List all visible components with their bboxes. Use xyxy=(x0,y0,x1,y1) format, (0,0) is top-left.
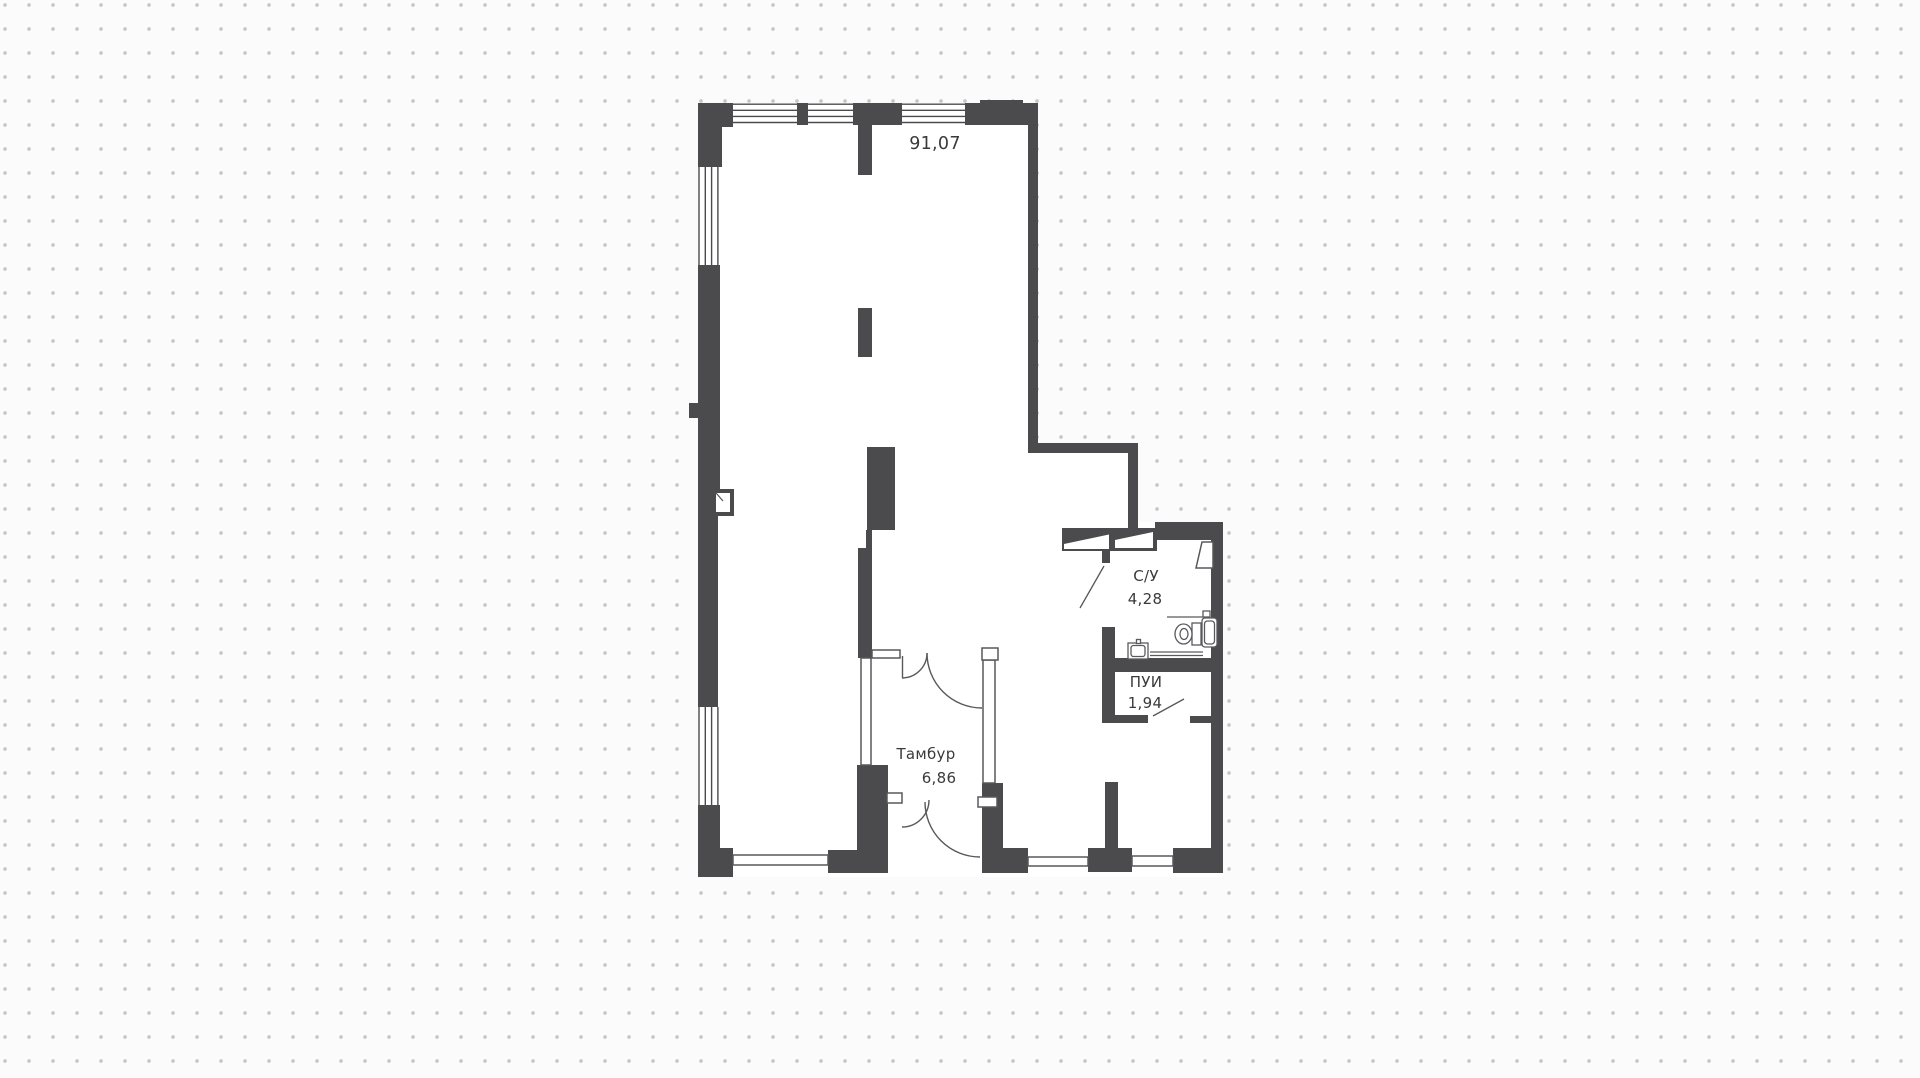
radiator-niche-icon xyxy=(716,493,730,512)
sink-tap xyxy=(1137,640,1141,644)
main-room-area-label: 91,07 xyxy=(909,134,961,154)
shelf-box xyxy=(1203,611,1210,617)
bathroom-area-label: 4,28 xyxy=(1128,590,1163,608)
floor-plan: 91,07 С/У 4,28 ПУИ 1,94 Тамбур 6,86 xyxy=(0,0,1920,1078)
cleaning-room-area-label: 1,94 xyxy=(1128,694,1163,712)
vestibule-name-label: Тамбур xyxy=(895,745,955,763)
toilet-tank xyxy=(1192,623,1201,645)
vestibule-area-label: 6,86 xyxy=(922,769,957,787)
bathroom-name-label: С/У xyxy=(1133,567,1159,585)
cleaning-room-name-label: ПУИ xyxy=(1130,673,1163,691)
toilet-bowl-icon xyxy=(1175,624,1192,644)
dotted-background: 91,07 С/У 4,28 ПУИ 1,94 Тамбур 6,86 xyxy=(0,0,1920,1078)
unit-interior xyxy=(698,103,1223,877)
